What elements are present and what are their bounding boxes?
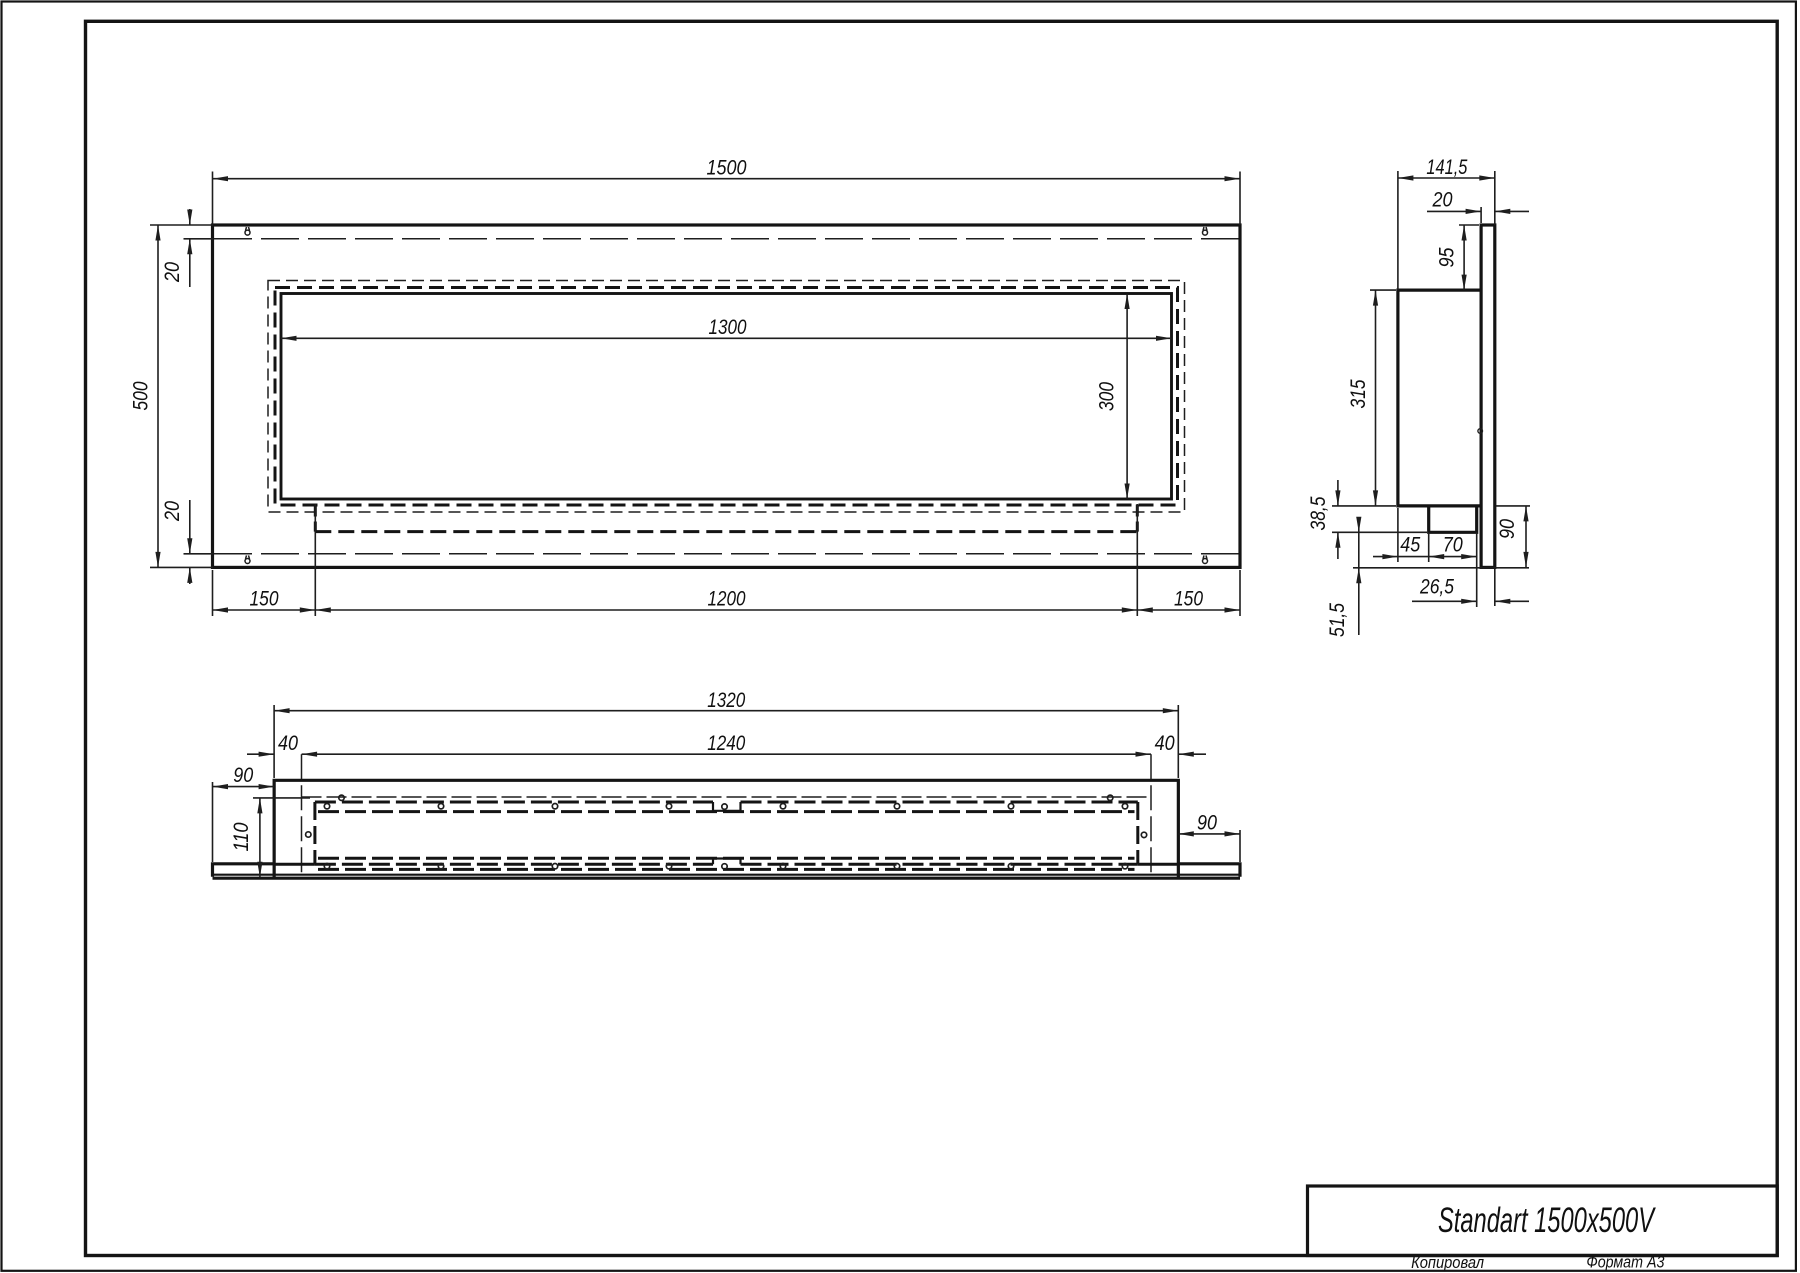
svg-text:1200: 1200 [708, 587, 746, 611]
svg-text:40: 40 [278, 731, 298, 755]
svg-text:90: 90 [1495, 519, 1519, 539]
svg-text:26,5: 26,5 [1419, 575, 1455, 599]
svg-text:51,5: 51,5 [1325, 602, 1349, 637]
svg-text:Формат А3: Формат А3 [1586, 1254, 1665, 1272]
svg-text:Копировал: Копировал [1411, 1254, 1484, 1272]
svg-text:20: 20 [160, 262, 184, 283]
svg-text:20: 20 [1432, 188, 1453, 212]
svg-text:500: 500 [129, 381, 153, 410]
svg-text:20: 20 [160, 501, 184, 522]
svg-text:1300: 1300 [709, 315, 747, 339]
svg-text:Standart 1500x500V: Standart 1500x500V [1438, 1201, 1656, 1240]
svg-text:300: 300 [1095, 382, 1119, 411]
svg-text:45: 45 [1400, 533, 1421, 557]
svg-text:110: 110 [229, 822, 253, 851]
svg-text:150: 150 [250, 587, 279, 611]
svg-text:40: 40 [1155, 731, 1175, 755]
svg-text:150: 150 [1174, 587, 1203, 611]
svg-text:38,5: 38,5 [1306, 496, 1330, 531]
svg-text:1240: 1240 [707, 731, 745, 755]
svg-text:90: 90 [233, 763, 253, 787]
svg-text:141,5: 141,5 [1426, 155, 1468, 179]
svg-text:70: 70 [1443, 533, 1463, 557]
svg-text:90: 90 [1197, 811, 1217, 835]
svg-text:1500: 1500 [707, 156, 747, 180]
svg-text:315: 315 [1346, 379, 1370, 409]
svg-text:1320: 1320 [707, 688, 745, 712]
svg-text:95: 95 [1434, 247, 1458, 268]
